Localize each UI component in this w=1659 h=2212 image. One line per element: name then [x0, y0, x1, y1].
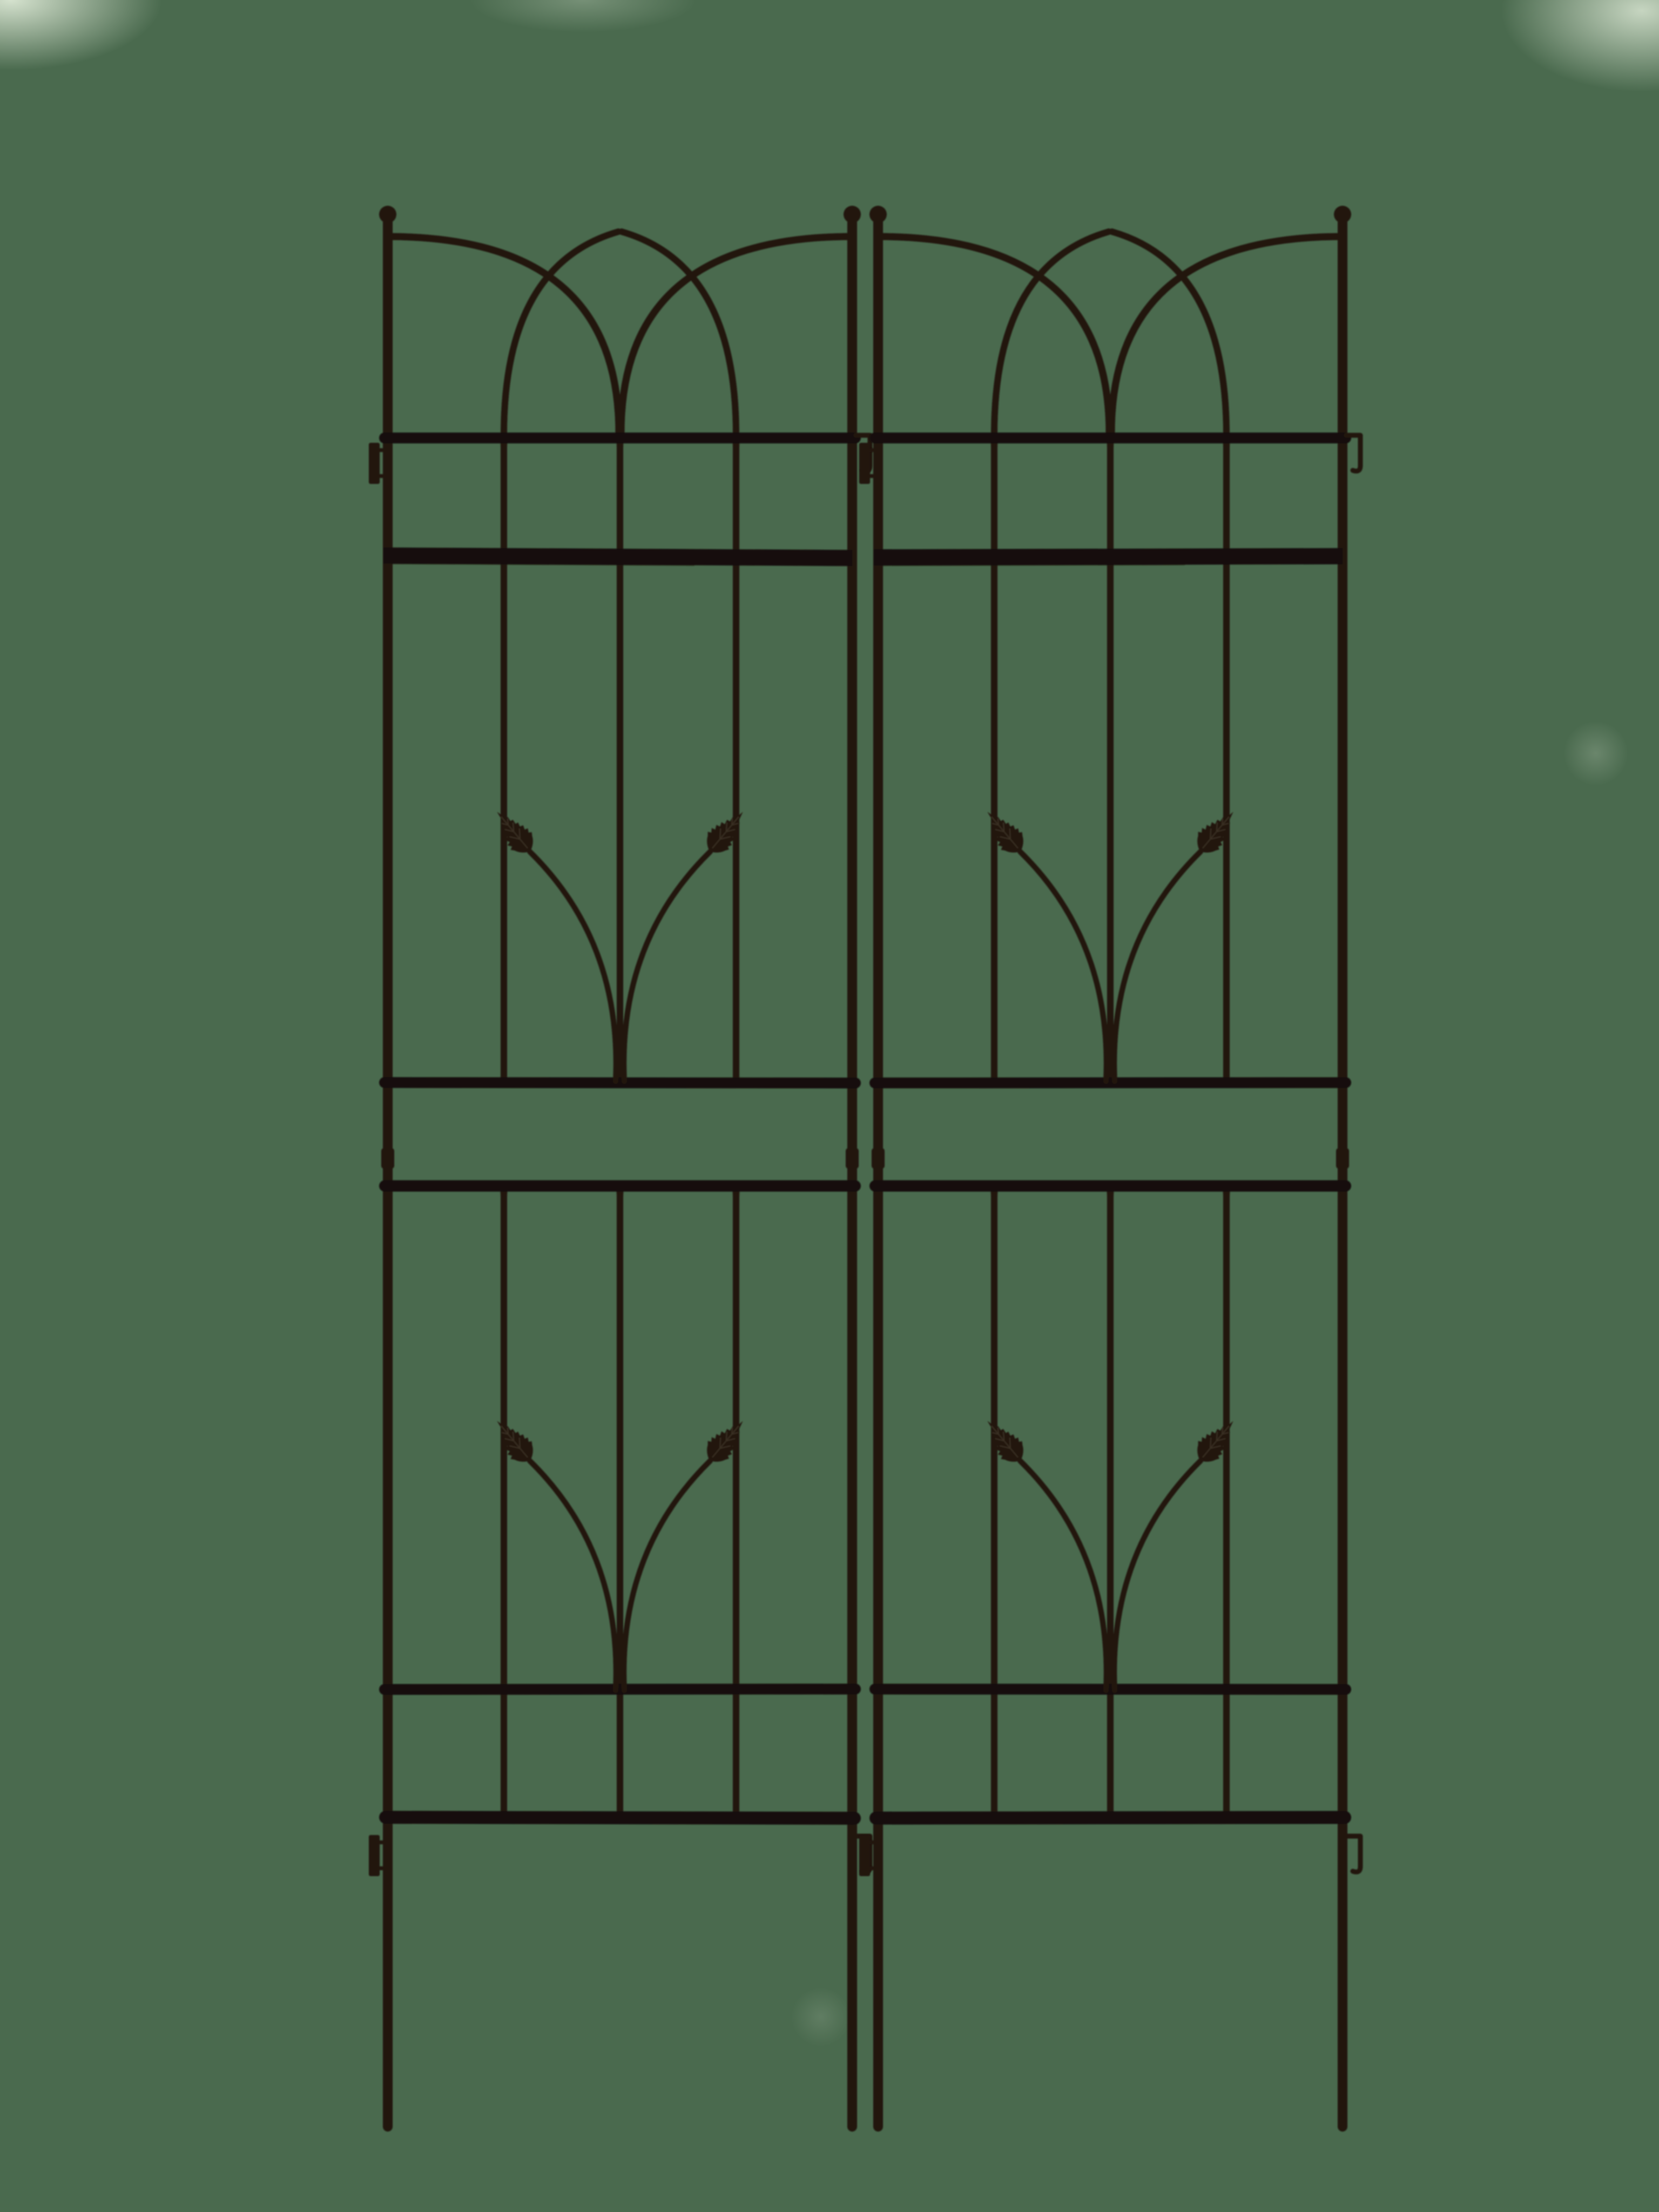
- connector-hook: [1346, 1836, 1360, 1872]
- connector-cleat: [369, 1835, 385, 1876]
- leaf-stem: [1020, 852, 1107, 1081]
- horizontal-rail: [869, 1684, 1351, 1695]
- horizontal-rail: [379, 1181, 861, 1192]
- connector-cleat: [859, 1835, 875, 1876]
- leaf-stem: [530, 1461, 616, 1690]
- post-sleeve-joint: [872, 1148, 885, 1169]
- corner-highlight: [0, 0, 162, 70]
- leaf-stem: [624, 852, 710, 1081]
- horizontal-rail: [869, 433, 1351, 443]
- horizontal-rail: [869, 1077, 1351, 1089]
- post-sleeve-joint: [1336, 1148, 1349, 1169]
- connector-cleat: [859, 443, 875, 484]
- leaf-stem: [1114, 1461, 1201, 1690]
- product-image-canvas: Two matching black wrought-iron garden t…: [0, 0, 1659, 2212]
- horizontal-rail: [379, 433, 861, 443]
- gothic-arch-top: [388, 232, 852, 435]
- leaf-stem: [530, 852, 616, 1081]
- horizontal-rail: [379, 1684, 861, 1695]
- trellis-panel-left: [369, 206, 870, 2127]
- background-artifacts: [0, 0, 1659, 2047]
- flat-cross-band: [874, 548, 1343, 566]
- corner-highlight: [1501, 0, 1659, 92]
- gothic-arch-top: [878, 232, 1343, 435]
- leaf-stem: [1114, 852, 1201, 1081]
- ball-finial: [844, 206, 861, 223]
- horizontal-rail: [869, 1811, 1351, 1824]
- ball-finial: [869, 206, 887, 223]
- ball-finial: [1334, 206, 1351, 223]
- leaf-stem: [1020, 1461, 1107, 1690]
- horizontal-rail: [379, 1077, 861, 1089]
- horizontal-rail: [869, 1181, 1351, 1192]
- flat-cross-band: [383, 548, 852, 567]
- trellis-product-image: [0, 0, 1659, 2212]
- ball-finial: [379, 206, 396, 223]
- trellis-panel-right: [859, 206, 1360, 2127]
- horizontal-rail: [379, 1811, 861, 1825]
- post-sleeve-joint: [846, 1148, 859, 1169]
- connector-cleat: [369, 443, 385, 484]
- post-sleeve-joint: [381, 1148, 394, 1169]
- leaf-stem: [624, 1461, 710, 1690]
